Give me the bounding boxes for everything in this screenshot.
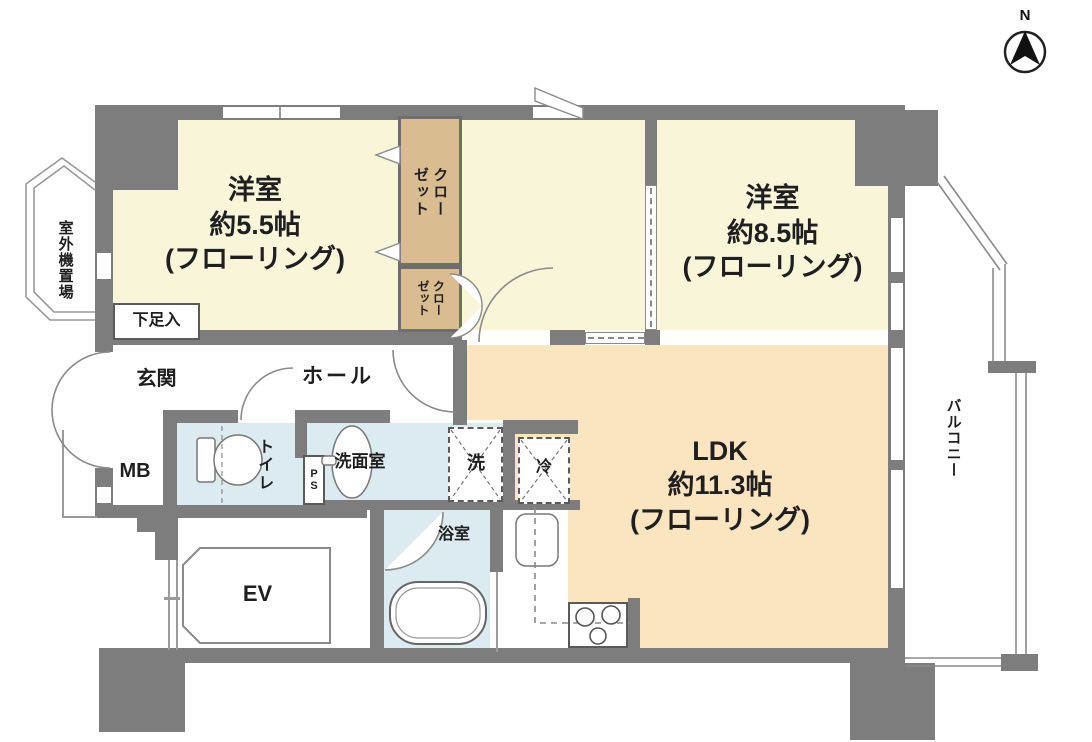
closet-door-flap-upper: [376, 146, 400, 164]
western-room-large-name: 洋室: [746, 181, 800, 216]
floor-plan: N 洋室 約5.5帖 (フローリング) 洋室 約8.5帖 (フローリング) LD…: [0, 0, 1092, 742]
label-bathroom: 浴室: [430, 524, 478, 546]
stove-burner-3: [590, 628, 606, 644]
label-toilet: トイレ: [250, 425, 276, 505]
kitchen-sink: [516, 514, 558, 566]
compass-north-label: N: [1020, 7, 1031, 24]
western-room-small-size: 約5.5帖: [209, 208, 301, 243]
label-meter-box: MB: [107, 442, 163, 502]
balcony-rail-joint: [988, 361, 1036, 373]
label-western-room-large: 洋室 約8.5帖 (フローリング): [655, 178, 890, 288]
label-washroom: 洗面室: [318, 450, 402, 474]
label-closet-lower: クロー ゼット: [400, 267, 460, 329]
ldk-floor: (フローリング): [630, 503, 810, 538]
ldk-name: LDK: [692, 434, 748, 469]
label-entrance: 玄関: [113, 366, 200, 394]
western-room-large-floor: (フローリング): [683, 250, 863, 285]
label-washing-machine: 洗: [460, 450, 492, 478]
western-room-small-name: 洋室: [228, 173, 282, 208]
entrance-door-arc: [52, 352, 110, 468]
label-western-room-small: 洋室 約5.5帖 (フローリング): [115, 170, 395, 280]
middle-room-door-arc: [479, 268, 553, 342]
ldk-size: 約11.3帖: [667, 468, 772, 503]
balcony-rail-end-cap: [1001, 654, 1038, 671]
western-room-small-floor: (フローリング): [165, 242, 345, 277]
label-outdoor-unit-space: 室外機置場: [52, 192, 78, 327]
label-balcony: バルコニー: [940, 375, 966, 500]
label-closet-upper: クロー ゼット: [400, 125, 460, 260]
top-window-flap: [535, 88, 583, 119]
label-shoe-cabinet: 下足入: [113, 305, 200, 338]
label-elevator: EV: [230, 578, 285, 610]
toilet-tank: [197, 438, 215, 482]
bathtub-outer: [390, 582, 486, 644]
western-room-large-size: 約8.5帖: [727, 216, 819, 251]
stove-burner-2: [602, 606, 620, 624]
stove-burner-1: [576, 608, 594, 626]
compass: N: [1005, 7, 1045, 72]
label-hall: ホール: [283, 362, 393, 392]
washroom-door-arc: [393, 350, 455, 412]
label-refrigerator: 冷: [528, 455, 560, 481]
label-ldk: LDK 約11.3帖 (フローリング): [580, 428, 860, 543]
